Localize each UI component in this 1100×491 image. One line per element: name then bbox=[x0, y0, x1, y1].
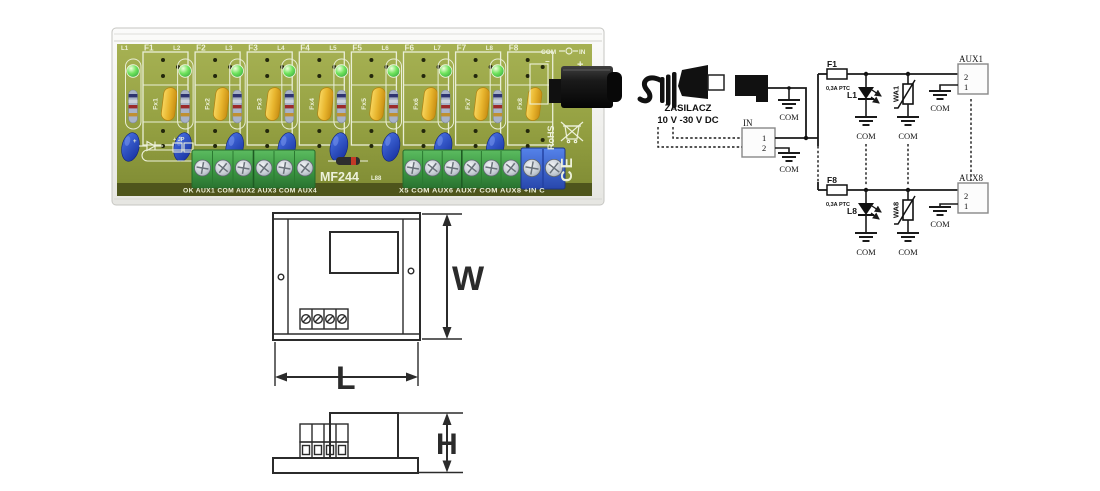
fuse-symbol bbox=[827, 69, 847, 79]
terminal-labels-left: OK AUX1 COM AUX2 AUX3 COM AUX4 bbox=[183, 189, 317, 195]
dimension-drawing-top-view: W L bbox=[273, 213, 485, 396]
window-outline bbox=[330, 232, 398, 273]
led-indicator bbox=[335, 65, 348, 78]
catalog-figure: L1F1Fx1L2F2Fx2L3F3Fx3L4F4Fx4L5F5Fx5L6F6F… bbox=[0, 0, 1100, 491]
aux-label: AUX8 bbox=[959, 173, 983, 183]
diode-plus-mark: + bbox=[133, 139, 137, 145]
fuse-channel-label: F8 bbox=[509, 44, 519, 53]
terminal-screw bbox=[256, 160, 273, 177]
led-label: L8 bbox=[486, 45, 494, 52]
terminal-labels-right: X5 COM AUX6 AUX7 COM AUX8 +IN C bbox=[399, 189, 545, 195]
fuse-channel-label: F6 bbox=[405, 44, 415, 53]
led-label: L3 bbox=[225, 45, 233, 52]
psu-label: ZASILACZ bbox=[665, 103, 712, 114]
terminal-screw bbox=[483, 160, 499, 176]
led-indicator bbox=[127, 65, 140, 78]
led-indicator bbox=[387, 65, 400, 78]
in-label: IN bbox=[743, 118, 753, 128]
mounting-hole bbox=[278, 274, 284, 280]
led-label: L4 bbox=[277, 45, 285, 52]
led-label: L1 bbox=[121, 45, 129, 52]
terminal-screw bbox=[503, 160, 520, 177]
com-label: COM bbox=[779, 164, 799, 174]
terminal-screw bbox=[195, 160, 211, 176]
in-pin2: 2 bbox=[762, 143, 766, 153]
terminal-screw bbox=[463, 160, 480, 177]
width-label: W bbox=[452, 260, 485, 298]
fuse-silk-label: Fx5 bbox=[361, 98, 368, 110]
varistor-label: WA1 bbox=[892, 86, 901, 102]
led-emission-arrow bbox=[872, 90, 881, 96]
in-terminal-box: IN 1 2 COM bbox=[658, 118, 818, 174]
length-label: L bbox=[336, 360, 356, 396]
aux-terminal-box bbox=[958, 64, 988, 94]
jumper-label: + JP bbox=[173, 137, 185, 143]
terminal-screw bbox=[215, 160, 232, 177]
psu-plug bbox=[640, 65, 724, 108]
terminal-side-outline bbox=[300, 424, 348, 458]
led-label: L2 bbox=[173, 45, 181, 52]
plug-tip bbox=[708, 75, 724, 90]
width-dimension: W bbox=[422, 214, 485, 339]
fuse-channel-label: F4 bbox=[300, 44, 310, 53]
led-label: L1 bbox=[847, 90, 857, 100]
dimension-drawing-side-view: H bbox=[273, 413, 463, 473]
height-label: H bbox=[436, 428, 458, 461]
fuse-channel-label: F1 bbox=[144, 44, 154, 53]
led-label: L5 bbox=[329, 45, 337, 52]
led-indicator bbox=[179, 65, 192, 78]
aux-pin1: 1 bbox=[964, 201, 968, 211]
fuse-silk-label: Fx7 bbox=[465, 98, 472, 110]
fuse-silk-label: Fx8 bbox=[517, 98, 524, 110]
led-indicator bbox=[231, 65, 244, 78]
power-in-label: IN bbox=[579, 49, 586, 56]
aux-pin2: 2 bbox=[964, 191, 968, 201]
terminal-screw bbox=[236, 160, 252, 176]
fuse-silk-label: Fx4 bbox=[309, 98, 316, 110]
length-dimension: L bbox=[275, 342, 418, 396]
com-label: COM bbox=[930, 219, 950, 229]
ground-symbol bbox=[778, 100, 800, 108]
com-label: COM bbox=[856, 131, 876, 141]
smd-diode-stripe bbox=[351, 157, 356, 165]
led-label: L8 bbox=[847, 206, 857, 216]
terminal-block-outline bbox=[300, 309, 348, 329]
led-indicator bbox=[439, 65, 452, 78]
fuse-silk-label: Fx2 bbox=[205, 98, 212, 110]
fuse-silk-label: Fx3 bbox=[257, 98, 264, 110]
fuse-channel-label: F5 bbox=[352, 44, 362, 53]
fuse-label: F8 bbox=[827, 175, 837, 185]
model-label: MF244 bbox=[320, 170, 359, 184]
fuse-silk-label: Fx6 bbox=[413, 98, 420, 110]
led-label: L7 bbox=[434, 45, 442, 52]
led-emission-arrow bbox=[872, 206, 881, 212]
fuse-channel-label: F2 bbox=[196, 44, 206, 53]
terminal-screw bbox=[424, 160, 441, 177]
fuse-silk-label: Fx1 bbox=[153, 98, 160, 110]
mounting-hole bbox=[408, 268, 414, 274]
fuse-channel-label: F7 bbox=[457, 44, 467, 53]
branch-f1: F1 0,3A PTC L1 COM WA1 COM AUX1 bbox=[818, 54, 988, 141]
batch-code: L88 bbox=[371, 176, 382, 182]
aux-pin2: 2 bbox=[964, 72, 968, 82]
led-indicator bbox=[491, 65, 504, 78]
com-label: COM bbox=[930, 103, 950, 113]
figure-canvas: L1F1Fx1L2F2Fx2L3F3Fx3L4F4Fx4L5F5Fx5L6F6F… bbox=[0, 0, 1100, 491]
smd-diode bbox=[336, 157, 360, 165]
wiring-schematic: ZASILACZ 10 V -30 V DC COM IN 1 2 bbox=[640, 54, 988, 257]
fuse-label: F1 bbox=[827, 59, 837, 69]
aux-pin1: 1 bbox=[964, 82, 968, 92]
body-outline bbox=[330, 413, 398, 458]
terminal-screw bbox=[523, 159, 540, 176]
ce-mark: CE bbox=[559, 156, 576, 182]
led-indicator bbox=[283, 65, 296, 78]
com-label: COM bbox=[898, 131, 918, 141]
pcb-photo: L1F1Fx1L2F2Fx2L3F3Fx3L4F4Fx4L5F5Fx5L6F6F… bbox=[112, 28, 622, 205]
com-label: COM bbox=[898, 247, 918, 257]
fuse-channel-label: F3 bbox=[248, 44, 258, 53]
com-label: COM bbox=[856, 247, 876, 257]
base-outline bbox=[273, 458, 418, 473]
com-label: COM bbox=[779, 112, 799, 122]
psu-voltage: 10 V -30 V DC bbox=[657, 115, 718, 126]
rohs-mark: RoHS bbox=[546, 126, 556, 151]
branch-f8: F8 0,3A PTC L8 COM WA8 COM AUX8 2 bbox=[818, 173, 988, 257]
height-dimension: H bbox=[398, 413, 463, 473]
varistor-label: WA8 bbox=[892, 202, 901, 218]
terminal-screw bbox=[405, 160, 421, 176]
power-com-label: COM bbox=[541, 49, 556, 56]
fuse-symbol bbox=[827, 185, 847, 195]
terminal-screw bbox=[277, 160, 293, 176]
aux-terminal-box bbox=[958, 183, 988, 213]
aux-label: AUX1 bbox=[959, 54, 983, 64]
terminal-screw bbox=[297, 160, 314, 177]
in-pin1: 1 bbox=[762, 133, 766, 143]
terminal-screw bbox=[444, 160, 460, 176]
ground-symbol bbox=[778, 153, 800, 161]
led-label: L6 bbox=[382, 45, 390, 52]
